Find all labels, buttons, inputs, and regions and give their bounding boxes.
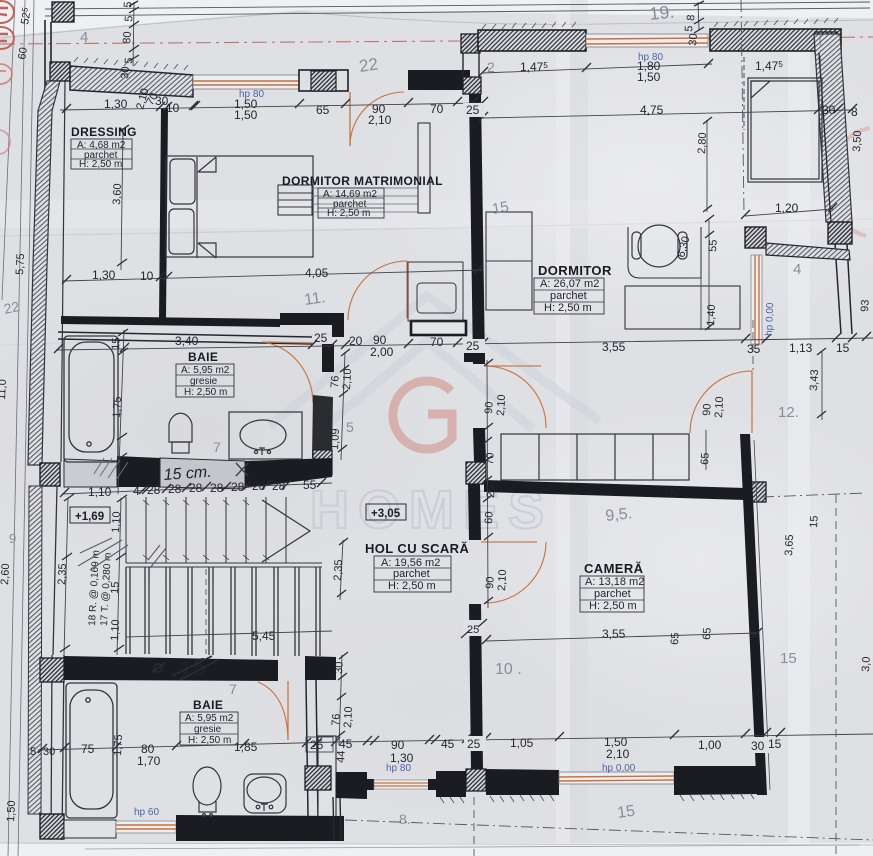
svg-text:70: 70 [484, 452, 497, 465]
svg-text:parchet: parchet [594, 588, 631, 600]
svg-text:1,13: 1,13 [789, 341, 813, 355]
svg-text:1,40: 1,40 [705, 304, 718, 326]
svg-text:76: 76 [330, 713, 343, 726]
svg-text:35: 35 [747, 342, 761, 356]
svg-text:25: 25 [314, 331, 328, 345]
svg-text:1,30: 1,30 [92, 268, 116, 282]
svg-text:2,10: 2,10 [368, 113, 392, 127]
svg-text:20: 20 [349, 334, 363, 348]
svg-text:1,75: 1,75 [111, 396, 124, 418]
svg-text:8.: 8. [399, 811, 411, 827]
svg-text:5: 5 [123, 15, 135, 22]
svg-text:28: 28 [189, 481, 203, 495]
svg-text:11.: 11. [303, 289, 326, 309]
svg-text:DORMITOR: DORMITOR [538, 263, 612, 278]
svg-text:90: 90 [483, 401, 496, 414]
svg-text:2,35: 2,35 [56, 563, 69, 585]
svg-text:65: 65 [701, 627, 714, 640]
svg-text:3,0: 3,0 [860, 656, 873, 672]
svg-text:3,50: 3,50 [851, 130, 864, 152]
svg-text:3,55: 3,55 [602, 627, 626, 641]
svg-text:55: 55 [303, 478, 317, 492]
svg-text:4: 4 [793, 261, 801, 278]
svg-text:60: 60 [483, 511, 496, 524]
svg-text:2,10: 2,10 [342, 706, 355, 728]
svg-text:H: 2,50 m: H: 2,50 m [79, 159, 122, 170]
svg-text:3,60: 3,60 [111, 183, 124, 205]
svg-text:5: 5 [346, 419, 354, 435]
svg-text:gresie: gresie [194, 724, 222, 735]
svg-text:H: 2,50 m: H: 2,50 m [184, 387, 227, 398]
svg-text:BAIE: BAIE [188, 350, 218, 364]
svg-text:65: 65 [669, 632, 682, 645]
svg-text:1,70: 1,70 [137, 754, 161, 768]
svg-text:A: 26,07 m2: A: 26,07 m2 [540, 278, 599, 290]
svg-text:hp 80: hp 80 [239, 89, 264, 100]
svg-text:2: 2 [487, 59, 495, 75]
svg-text:CAMERĂ: CAMERĂ [584, 561, 644, 576]
svg-text:1,10: 1,10 [88, 485, 112, 499]
svg-text:25: 25 [467, 624, 479, 636]
svg-text:5: 5 [123, 57, 135, 64]
svg-text:H: 2,50 m: H: 2,50 m [589, 600, 637, 612]
svg-text:15: 15 [616, 803, 636, 822]
svg-text:1,75: 1,75 [112, 734, 125, 756]
svg-text:5,75: 5,75 [14, 253, 27, 275]
svg-text:30: 30 [43, 746, 55, 758]
svg-text:30: 30 [333, 661, 346, 674]
svg-text:1,10: 1,10 [110, 511, 123, 533]
svg-text:15: 15 [780, 650, 797, 667]
svg-text:10: 10 [166, 101, 180, 115]
svg-text:hp 0,00: hp 0,00 [602, 763, 636, 774]
svg-text:A: 5,95 m2: A: 5,95 m2 [185, 713, 234, 724]
svg-text:15: 15 [808, 515, 821, 528]
svg-text:1,05: 1,05 [510, 736, 534, 750]
svg-text:4,75: 4,75 [640, 103, 664, 117]
svg-text:15 cm.: 15 cm. [163, 464, 212, 484]
svg-text:4: 4 [133, 484, 140, 498]
svg-text:76: 76 [329, 375, 342, 388]
svg-text:4: 4 [80, 29, 88, 46]
svg-text:2,60: 2,60 [0, 563, 12, 585]
svg-text:1,00: 1,00 [698, 738, 722, 752]
svg-text:90: 90 [701, 403, 714, 416]
svg-text:A: 13,18 m2: A: 13,18 m2 [585, 576, 644, 588]
svg-text:75: 75 [81, 742, 95, 756]
svg-text:55: 55 [707, 239, 720, 252]
svg-text:15: 15 [491, 198, 510, 218]
svg-text:25: 25 [466, 339, 480, 353]
svg-text:hp 80: hp 80 [638, 52, 663, 63]
svg-text:5: 5 [683, 25, 695, 32]
svg-text:HOL CU SCARĂ: HOL CU SCARĂ [365, 541, 469, 556]
svg-text:80: 80 [121, 31, 134, 44]
svg-text:28: 28 [231, 480, 245, 494]
svg-text:25: 25 [485, 485, 498, 498]
svg-text:A: 5,95 m2: A: 5,95 m2 [181, 365, 230, 376]
svg-text:22: 22 [358, 55, 379, 76]
svg-text:2,10: 2,10 [495, 394, 508, 416]
svg-text:25: 25 [467, 737, 481, 751]
svg-text:hp 0,00: hp 0,00 [764, 302, 776, 336]
svg-text:3,55: 3,55 [602, 340, 626, 354]
svg-text:2,80: 2,80 [696, 132, 709, 154]
svg-text:12.: 12. [778, 404, 799, 421]
svg-text:1,50: 1,50 [637, 70, 661, 84]
svg-text:28: 28 [147, 483, 161, 497]
svg-text:30: 30 [822, 103, 836, 117]
svg-text:28: 28 [210, 481, 224, 495]
svg-text:44: 44 [335, 750, 348, 763]
svg-text:2,10: 2,10 [713, 396, 726, 418]
svg-text:4,05: 4,05 [305, 266, 329, 280]
svg-text:8: 8 [851, 105, 858, 119]
svg-text:93: 93 [859, 299, 872, 312]
svg-text:5: 5 [122, 1, 134, 8]
svg-text:hp 60: hp 60 [134, 807, 159, 818]
svg-text:28: 28 [168, 482, 182, 496]
svg-text:2,10: 2,10 [341, 368, 354, 390]
svg-text:15: 15 [768, 737, 782, 751]
svg-text:28: 28 [252, 479, 266, 493]
svg-text:1,50: 1,50 [5, 800, 18, 822]
svg-text:1,50: 1,50 [234, 108, 258, 122]
svg-text:+1,69: +1,69 [75, 511, 104, 523]
svg-text:30: 30 [687, 33, 700, 46]
svg-text:DORMITOR MATRIMONIAL: DORMITOR MATRIMONIAL [282, 174, 443, 188]
svg-text:15: 15 [836, 341, 850, 355]
svg-text:hp 80: hp 80 [386, 763, 411, 774]
svg-text:60: 60 [16, 46, 30, 60]
svg-text:7: 7 [229, 681, 237, 697]
svg-text:15: 15 [110, 337, 123, 350]
svg-text:25: 25 [466, 103, 480, 117]
svg-text:90: 90 [391, 738, 405, 752]
svg-text:BAIE: BAIE [193, 698, 223, 712]
svg-text:7: 7 [213, 439, 221, 455]
svg-text:1,09: 1,09 [329, 428, 342, 450]
svg-text:45: 45 [339, 737, 353, 751]
svg-text:19.: 19. [648, 1, 675, 24]
svg-text:parchet: parchet [550, 290, 587, 302]
svg-text:+3,05: +3,05 [371, 508, 401, 520]
svg-text:10: 10 [140, 269, 154, 283]
svg-text:3,43: 3,43 [808, 369, 821, 391]
svg-text:3,40: 3,40 [175, 334, 199, 348]
svg-text:30: 30 [751, 739, 765, 753]
svg-text:gresie: gresie [190, 376, 218, 387]
svg-text:65: 65 [316, 103, 330, 117]
svg-text:parchet: parchet [393, 568, 430, 580]
svg-text:2,35: 2,35 [332, 559, 345, 581]
svg-text:10 .: 10 . [495, 661, 522, 678]
svg-text:2,10: 2,10 [496, 569, 509, 591]
svg-text:2,00: 2,00 [370, 345, 394, 359]
svg-text:H: 2,50 m: H: 2,50 m [388, 580, 436, 592]
svg-text:30: 30 [119, 66, 132, 79]
svg-text:H: 2,50 m: H: 2,50 m [188, 735, 231, 746]
svg-text:65: 65 [699, 452, 712, 465]
svg-text:8: 8 [685, 14, 697, 21]
svg-text:3,65: 3,65 [783, 534, 796, 556]
svg-text:11,0: 11,0 [0, 379, 9, 400]
svg-text:H: 2,50 m: H: 2,50 m [544, 302, 592, 314]
svg-text:25: 25 [669, 485, 682, 498]
svg-text:5,45: 5,45 [252, 629, 276, 643]
svg-text:DRESSING: DRESSING [71, 125, 137, 139]
svg-text:45: 45 [441, 737, 455, 751]
svg-text:2,10: 2,10 [606, 747, 630, 761]
svg-text:9,5.: 9,5. [605, 505, 633, 525]
svg-text:5: 5 [30, 746, 36, 758]
svg-text:9: 9 [9, 531, 16, 546]
svg-text:1,30: 1,30 [104, 97, 128, 111]
svg-text:70: 70 [430, 102, 444, 116]
svg-text:1,10: 1,10 [109, 619, 122, 641]
svg-text:70: 70 [430, 335, 444, 349]
svg-text:90: 90 [484, 576, 497, 589]
svg-text:25: 25 [310, 738, 324, 752]
svg-text:H: 2,50 m: H: 2,50 m [327, 208, 370, 219]
svg-text:1,20: 1,20 [775, 201, 799, 215]
svg-text:28: 28 [272, 479, 286, 493]
